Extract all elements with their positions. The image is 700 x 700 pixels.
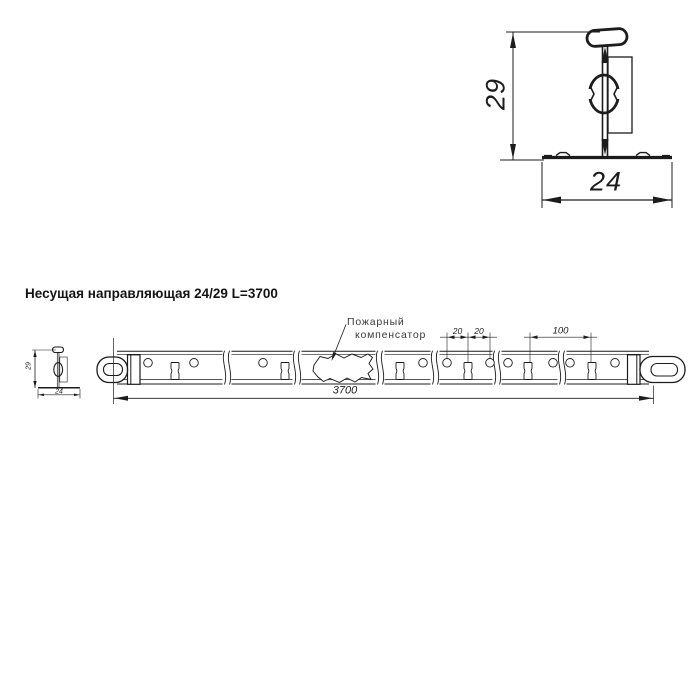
end-connector-right xyxy=(628,355,686,385)
overall-length-dim: 3700 xyxy=(333,386,357,397)
section-width-dim: 24 xyxy=(55,388,63,395)
profile-bulb xyxy=(586,28,627,47)
detail-height-dim: 29 xyxy=(483,78,510,110)
callout-line1: Пожарный xyxy=(347,316,426,329)
dim-arrow-up xyxy=(510,33,516,48)
dim-arrow-down xyxy=(510,144,516,159)
hanger-plate-small xyxy=(60,357,67,382)
drawing-title: Несущая направляющая 24/29 L=3700 xyxy=(25,287,278,301)
hole-pitch-dim-2: 20 xyxy=(474,326,483,335)
cross-section-detail xyxy=(500,28,672,208)
callout-line2: компенсатор xyxy=(355,329,426,342)
fire-compensator-callout: Пожарный компенсатор xyxy=(347,316,426,341)
fire-compensator-cutout xyxy=(313,354,373,383)
profile-drawing xyxy=(97,350,685,386)
end-connector-left xyxy=(97,355,140,385)
detail-width-dim: 24 xyxy=(590,169,622,196)
spring-eye-small xyxy=(54,363,63,377)
segment-joints xyxy=(223,350,567,386)
drawing-canvas xyxy=(0,0,700,700)
section-height-dim: 29 xyxy=(25,362,32,370)
hole-pitch-dim-1: 20 xyxy=(453,326,462,335)
slot-pitch-dim: 100 xyxy=(553,326,569,336)
